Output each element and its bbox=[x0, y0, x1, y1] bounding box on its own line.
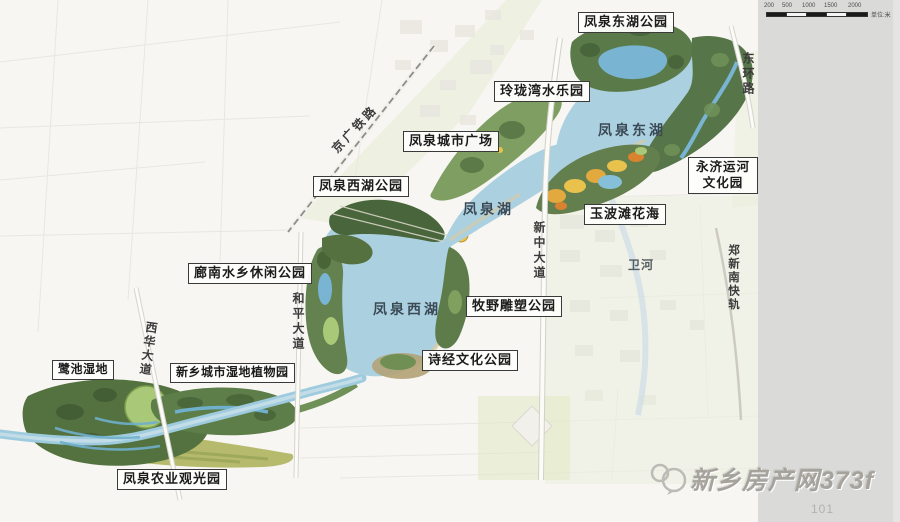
label-fengquan-agriculture-park: 凤泉农业观光园 bbox=[117, 469, 227, 490]
label-xinzhong-avenue: 新中大道 bbox=[531, 221, 548, 281]
right-gray-panel bbox=[758, 0, 900, 522]
watermark: 新乡房产网373f bbox=[648, 461, 874, 497]
scale-tick: 500 bbox=[782, 3, 792, 10]
scale-tick: 2000 bbox=[848, 3, 861, 10]
label-fengquan-west-lake: 凤泉西湖 bbox=[373, 299, 441, 319]
label-muye-sculpture-park: 牧野雕塑公园 bbox=[466, 296, 562, 317]
label-shijing-culture-park: 诗经文化公园 bbox=[422, 350, 518, 371]
scale-segment bbox=[806, 12, 828, 17]
label-langnan-water-town-leisure-park: 廊南水乡休闲公园 bbox=[188, 263, 312, 284]
label-line: 文化园 bbox=[696, 176, 750, 192]
label-fengquan-city-plaza: 凤泉城市广场 bbox=[403, 131, 499, 152]
label-xinxiang-wetland-botanical-garden: 新乡城市湿地植物园 bbox=[170, 363, 295, 383]
scale-bar: 200 500 1000 1500 2000 单位:米 bbox=[762, 3, 896, 21]
label-heping-avenue: 和平大道 bbox=[290, 292, 307, 352]
right-panel-edge bbox=[893, 0, 900, 522]
label-east-ring-road: 东环路 bbox=[740, 52, 757, 97]
scale-tick: 1000 bbox=[802, 3, 815, 10]
scale-unit-label: 单位:米 bbox=[871, 10, 891, 19]
scale-segment bbox=[826, 12, 848, 17]
label-fengquan-east-lake-park: 凤泉东湖公园 bbox=[578, 12, 674, 33]
east-urban-wash bbox=[545, 196, 758, 484]
label-linglong-bay-water-park: 玲珑湾水乐园 bbox=[494, 81, 590, 102]
scale-tick: 200 bbox=[764, 3, 774, 10]
scale-segment bbox=[766, 12, 788, 17]
label-fengquan-lake: 凤泉湖 bbox=[463, 199, 514, 219]
page-number: 101 bbox=[811, 502, 834, 516]
watermark-site-name: 新乡房产网373f bbox=[690, 461, 874, 497]
label-wei-river: 卫河 bbox=[628, 256, 654, 273]
label-yubo-beach-flower-sea: 玉波滩花海 bbox=[584, 204, 666, 225]
scale-segment bbox=[846, 12, 868, 17]
label-fengquan-west-lake-park: 凤泉西湖公园 bbox=[313, 176, 409, 197]
label-yongji-canal-culture-park: 永济运河 文化园 bbox=[688, 157, 758, 194]
scale-segment bbox=[786, 12, 808, 17]
watermark-logo-icon bbox=[648, 461, 690, 497]
scale-tick: 1500 bbox=[824, 3, 837, 10]
label-line: 永济运河 bbox=[696, 160, 750, 176]
planning-map-page: 200 500 1000 1500 2000 单位:米 凤泉东湖公园 玲珑湾水乐… bbox=[0, 0, 900, 522]
label-zhengxin-south-rail: 郑新南快轨 bbox=[725, 244, 741, 312]
label-luchi-wetland: 鹭池湿地 bbox=[52, 360, 114, 380]
label-fengquan-east-lake: 凤泉东湖 bbox=[598, 120, 666, 140]
